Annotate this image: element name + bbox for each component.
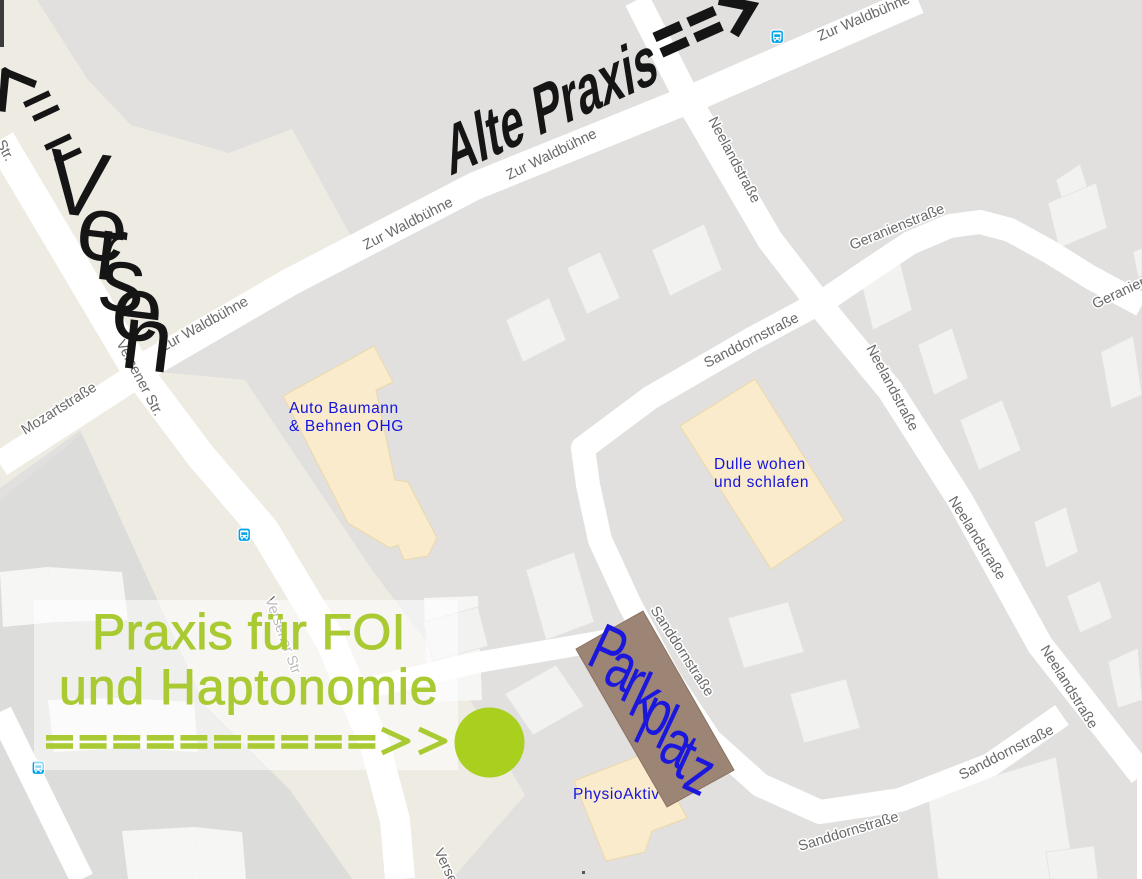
svg-text:Auto Baumann: Auto Baumann [289,400,399,417]
svg-text:PhysioAktiv: PhysioAktiv [573,786,660,803]
svg-text:& Behnen OHG: & Behnen OHG [289,418,404,435]
svg-text:und schlafen: und schlafen [714,474,809,491]
svg-text:Praxis für FOI: Praxis für FOI [92,604,406,660]
svg-text:Dulle wohen: Dulle wohen [714,456,806,473]
svg-text:und Haptonomie: und Haptonomie [59,659,439,715]
